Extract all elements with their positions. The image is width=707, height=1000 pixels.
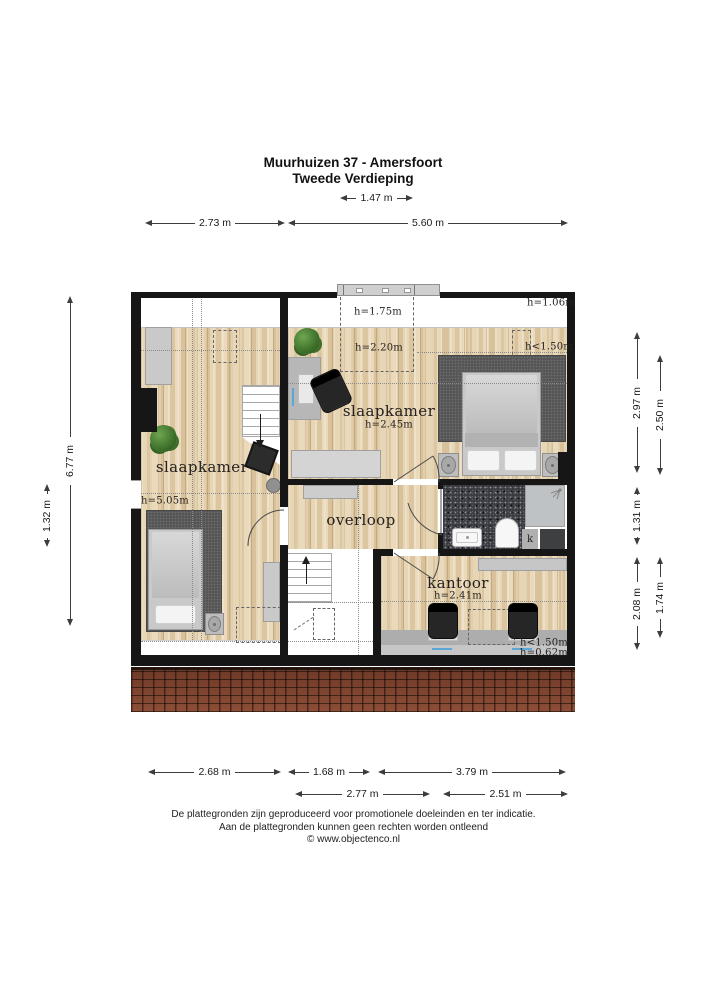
closet-label: k xyxy=(527,534,533,545)
wall xyxy=(288,479,393,485)
wall xyxy=(438,485,443,489)
stool xyxy=(266,478,281,493)
pillow xyxy=(467,450,500,471)
low-ceiling-strip xyxy=(288,297,567,328)
window-tick xyxy=(343,285,344,295)
room-label-bedroom-right: slaapkamer xyxy=(343,402,435,420)
height-label: h=2.45m xyxy=(365,420,413,431)
speaker xyxy=(208,616,221,632)
height-label: h=2.20m xyxy=(355,343,403,354)
dotted-line xyxy=(141,493,280,494)
dim-left-total: 6.77 m xyxy=(64,296,76,626)
office-chair xyxy=(508,603,538,639)
closet: k xyxy=(522,529,538,549)
cabinet xyxy=(478,558,567,571)
dim-right-office-inner: 1.74 m xyxy=(654,557,666,638)
wall xyxy=(131,655,575,666)
wall xyxy=(131,292,141,480)
footer: De plattegronden zijn geproduceerd voor … xyxy=(0,809,707,847)
desk-item xyxy=(432,648,452,650)
nightstand xyxy=(205,613,224,635)
bed xyxy=(148,529,203,630)
room-label-bedroom-left: slaapkamer xyxy=(156,458,248,476)
speaker xyxy=(441,456,456,474)
dark-cabinet xyxy=(540,529,565,549)
page-subtitle: Tweede Verdieping xyxy=(264,171,443,187)
arrow-left-icon xyxy=(340,195,347,201)
roof-tiles xyxy=(131,667,575,712)
dim-bottom-1: 2.68 m xyxy=(148,766,281,778)
wall xyxy=(373,549,381,666)
wall xyxy=(131,509,141,666)
window-pane xyxy=(404,288,411,293)
double-bed xyxy=(462,372,541,476)
stair-arrow-head xyxy=(256,440,264,448)
wall xyxy=(280,292,288,507)
room-label-landing: overloop xyxy=(326,511,395,529)
pillow xyxy=(504,450,537,471)
plant xyxy=(294,328,320,354)
chimney xyxy=(141,388,157,432)
sink xyxy=(452,528,482,547)
cabinet xyxy=(145,327,172,385)
dim-top-right: 5.60 m xyxy=(288,217,568,229)
staircase-up xyxy=(242,385,280,437)
bed-foot-bench xyxy=(465,433,538,447)
dim-bottom-5: 2.51 m xyxy=(443,788,568,800)
dotted-line xyxy=(288,602,373,603)
dashed-zone xyxy=(313,608,335,640)
pillow xyxy=(155,605,196,624)
dim-bottom-2: 1.68 m xyxy=(288,766,370,778)
dim-right-bedroom-inner: 2.50 m xyxy=(654,355,666,475)
window-pane xyxy=(356,288,363,293)
room-label-office: kantoor xyxy=(427,574,489,592)
low-ceiling-strip xyxy=(141,297,280,328)
title-block: Muurhuizen 37 - Amersfoort Tweede Verdie… xyxy=(264,155,443,187)
cabinet xyxy=(303,485,358,499)
height-label: h=2.41m xyxy=(434,591,482,602)
height-label: h=5.05m xyxy=(141,496,189,507)
nightstand xyxy=(438,453,459,477)
low-cabinet xyxy=(291,450,381,478)
dotted-line xyxy=(141,350,280,351)
dim-bottom-4: 2.77 m xyxy=(295,788,430,800)
dim-bottom-3: 3.79 m xyxy=(378,766,566,778)
footer-line-3: © www.objectenco.nl xyxy=(0,834,707,847)
dim-dormer-width: 1.47 m xyxy=(340,192,413,204)
page-title: Muurhuizen 37 - Amersfoort xyxy=(264,155,443,171)
pen xyxy=(292,388,294,406)
wall xyxy=(280,545,288,666)
footer-line-2: Aan de plattegronden kunnen geen rechten… xyxy=(0,822,707,835)
wall xyxy=(438,479,575,485)
office-chair xyxy=(428,603,458,639)
arrow-right-icon xyxy=(406,195,413,201)
stair-arrow xyxy=(306,563,307,584)
window-pane xyxy=(382,288,389,293)
toilet xyxy=(495,518,519,548)
dim-left-window: 1.32 m xyxy=(41,484,53,547)
dim-right-bathroom: 1.31 m xyxy=(631,487,643,545)
window-tick xyxy=(414,285,415,295)
dim-top-left: 2.73 m xyxy=(145,217,285,229)
height-label: h<1.50m xyxy=(525,342,573,353)
stair-arrow xyxy=(260,414,261,440)
dashed-zone xyxy=(213,330,237,363)
height-label: h=1.06m xyxy=(527,298,575,309)
height-label: h=0.62m xyxy=(520,648,568,659)
dormer-window xyxy=(337,284,440,296)
wall xyxy=(438,549,575,556)
height-label: h=1.75m xyxy=(354,307,402,318)
shower-head-icon xyxy=(548,487,563,502)
floorplan: k slaapkamer h=5.05m slaapkamer xyxy=(131,292,575,666)
wall xyxy=(131,292,337,298)
side-window xyxy=(131,480,141,509)
footer-line-1: De plattegronden zijn geproduceerd voor … xyxy=(0,809,707,822)
staircase-down xyxy=(288,553,332,603)
shower xyxy=(525,485,565,527)
dashed-zone xyxy=(236,607,281,643)
